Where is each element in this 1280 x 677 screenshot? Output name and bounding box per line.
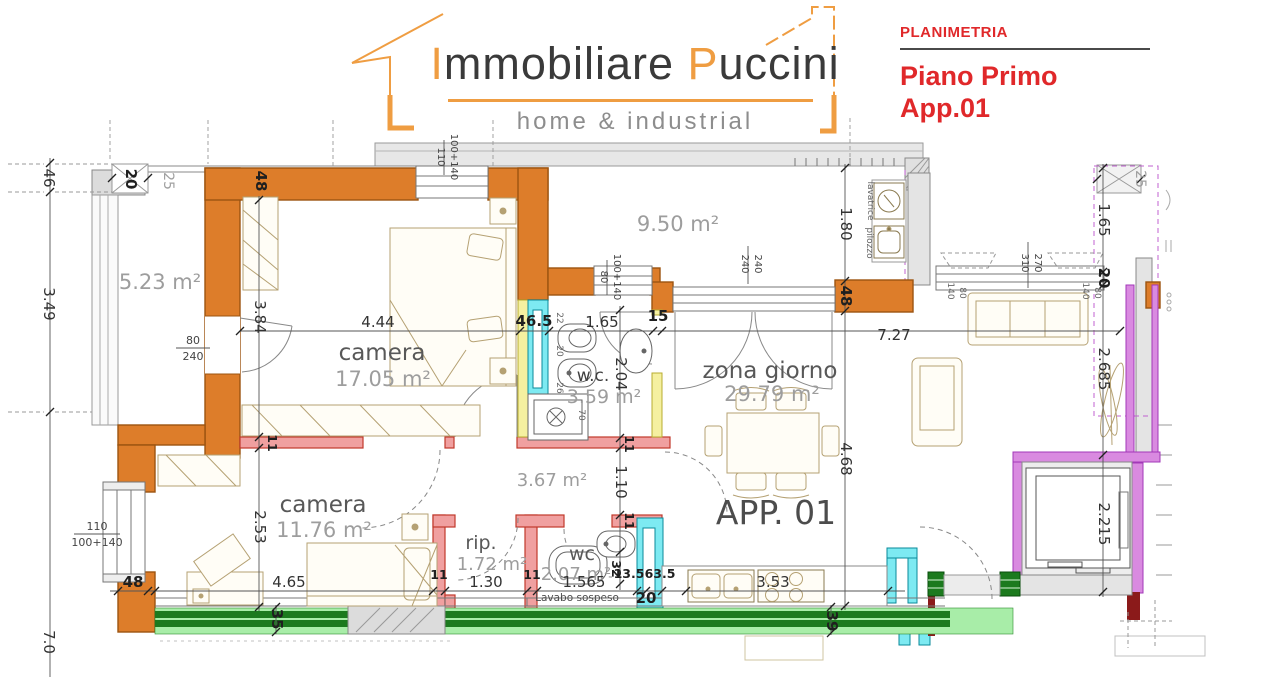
brand-word-2: Puccini	[688, 38, 840, 90]
dim-20-topleft: 20	[122, 169, 140, 190]
panel-rule	[900, 48, 1150, 50]
room-terrace-large-area: 9.50 m²	[637, 212, 719, 236]
dim-204: 2.04	[612, 357, 630, 390]
apartment-label: APP. 01	[716, 493, 836, 532]
room-camera2-area: 11.76 m²	[276, 518, 372, 542]
elevator	[1020, 462, 1132, 595]
dim-110: 1.10	[612, 465, 630, 498]
dim-1565: 1.565	[563, 573, 606, 591]
win-left-h: 100+140	[71, 536, 122, 549]
win-living-w: 310	[1019, 253, 1030, 272]
win-top-h: 100+140	[448, 134, 459, 181]
win-top-w: 110	[435, 147, 446, 166]
sofa-right-80: 80	[1092, 287, 1102, 299]
dim-15: 15	[648, 307, 669, 325]
brand-tagline: home & industrial	[420, 108, 850, 136]
dim-11-e: 11	[622, 512, 637, 529]
door-small-w: 80	[186, 334, 200, 347]
dim-465-wall: 46.5	[515, 312, 552, 330]
dim-wc-22: 22	[554, 312, 564, 323]
room-terrace-small-area: 5.23 m²	[119, 270, 201, 294]
panel-kicker: PLANIMETRIA	[900, 24, 1150, 41]
brand-word-1: Immobiliare	[430, 38, 674, 90]
room-wc-main-name: w.c.	[577, 366, 610, 386]
win-wc-w: 80	[598, 271, 609, 284]
dim-wc-70: 70	[576, 409, 586, 421]
dim-130: 1.30	[469, 573, 502, 591]
dim-468: 4.68	[837, 442, 855, 475]
brand-underline	[448, 99, 813, 102]
door-terrace-w: 240	[739, 254, 750, 273]
win-living-h: 270	[1032, 253, 1043, 272]
win-left-w: 110	[87, 520, 108, 533]
dim-11-a: 11	[265, 434, 280, 451]
sofa-left-140: 140	[945, 282, 955, 299]
dim-39: 39	[823, 611, 841, 632]
dim-727: 7.27	[877, 326, 910, 344]
dim-25-right: 25	[1132, 170, 1148, 188]
dim-46-left: 46	[40, 168, 58, 187]
dim-165-right: 1.65	[1095, 203, 1113, 236]
panel-floor: Piano Primo	[900, 60, 1150, 92]
dim-48-topleft: 48	[252, 171, 270, 192]
room-camera1-name: camera	[339, 340, 426, 366]
dim-48-bottom: 48	[123, 573, 144, 591]
dim-11-d: 11	[622, 435, 637, 452]
dim-11-c: 11	[523, 567, 540, 582]
floor-plan-page: Immobiliare Puccini home & industrial PL…	[0, 0, 1280, 677]
panel-apartment: App.01	[900, 92, 1150, 124]
dim-349-left: 3.49	[40, 287, 58, 320]
dim-11-b: 11	[430, 567, 447, 582]
room-storage-name: rip.	[465, 532, 496, 554]
lavabo-label: Lavabo sospeso	[535, 592, 619, 604]
brand-logo-text: Immobiliare Puccini	[420, 38, 850, 90]
dim-135: 13.5	[614, 566, 645, 581]
dim-165-wc: 1.65	[585, 313, 618, 331]
dim-444: 4.44	[361, 313, 394, 331]
dim-20-bottom: 20	[636, 589, 657, 607]
dim-2215: 2.215	[1095, 503, 1113, 546]
dim-635: 63.5	[645, 566, 676, 581]
win-wc-h: 100+140	[611, 254, 622, 301]
room-camera2-name: camera	[280, 492, 367, 518]
lavatrice-label: lavatrice	[865, 181, 875, 221]
door-small-h: 240	[183, 350, 204, 363]
dim-353: 3.53	[756, 573, 789, 591]
room-storage-area: 1.72 m²	[457, 554, 528, 575]
room-hallway-area: 3.67 m²	[517, 470, 588, 491]
sofa-right-140: 140	[1080, 282, 1090, 299]
room-camera1-area: 17.05 m²	[335, 367, 431, 391]
dim-384: 3.84	[251, 300, 269, 333]
dim-48-right: 48	[837, 286, 855, 307]
dim-70-left: 7.0	[40, 630, 58, 654]
dim-465-bottom: 4.65	[272, 573, 305, 591]
dim-wc-26: 26	[554, 382, 564, 394]
dim-180: 1.80	[837, 207, 855, 240]
dim-253: 2.53	[251, 510, 269, 543]
title-panel: PLANIMETRIA Piano Primo App.01	[900, 24, 1150, 125]
dim-35: 35	[268, 609, 286, 630]
room-living-area: 29.79 m²	[724, 382, 820, 406]
pilozzo-label: pilozzo	[864, 227, 874, 259]
dim-wc-20: 20	[554, 345, 564, 357]
door-terrace-h: 240	[752, 254, 763, 273]
dim-20-right: 20	[1095, 268, 1113, 289]
terrace-door-gap	[205, 316, 240, 374]
room-living-name: zona giorno	[703, 358, 838, 384]
sofa-left-80: 80	[957, 287, 967, 299]
room-wc-small-name: wc	[569, 543, 595, 565]
dim-25-topleft: 25	[160, 172, 176, 190]
dim-2685: 2.685	[1095, 348, 1113, 391]
